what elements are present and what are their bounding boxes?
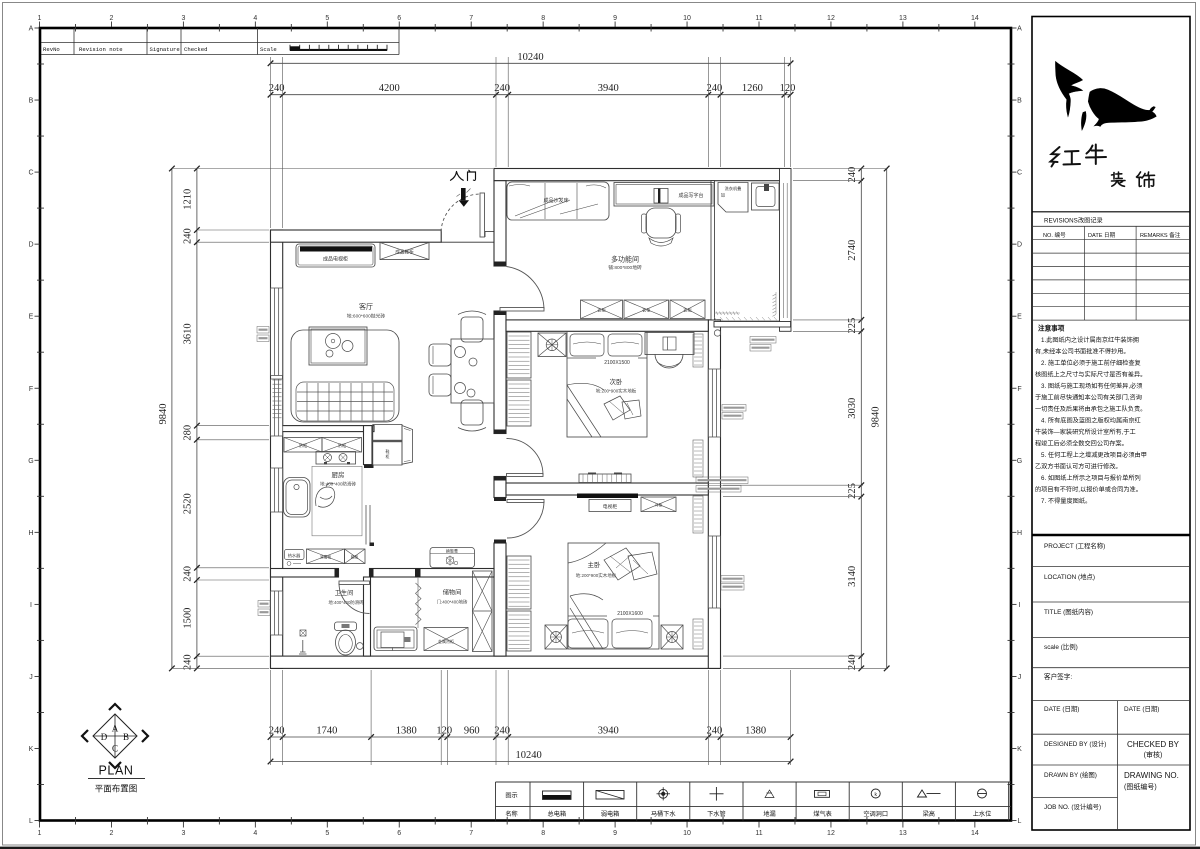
- svg-text:7: 7: [469, 830, 473, 837]
- svg-text:13: 13: [899, 15, 907, 22]
- svg-text:14: 14: [971, 830, 979, 837]
- svg-text:240: 240: [183, 228, 194, 244]
- svg-text:多功能间: 多功能间: [611, 255, 639, 264]
- svg-text:3: 3: [181, 15, 185, 22]
- svg-text:D: D: [101, 732, 108, 742]
- svg-text:PLAN: PLAN: [98, 764, 133, 778]
- svg-text:厨房: 厨房: [332, 470, 345, 479]
- svg-text:L: L: [1018, 818, 1022, 825]
- svg-text:洗衣机叠: 洗衣机叠: [725, 185, 742, 192]
- svg-text:2: 2: [109, 15, 113, 22]
- svg-text:K: K: [29, 746, 34, 753]
- svg-text:240: 240: [183, 654, 194, 670]
- svg-text:PROJECT (工程名称): PROJECT (工程名称): [1044, 541, 1105, 550]
- svg-text:地:200*900实木地板: 地:200*900实木地板: [576, 572, 617, 579]
- svg-text:DATE (日期): DATE (日期): [1124, 705, 1159, 713]
- svg-text:G: G: [28, 458, 33, 465]
- svg-text:C: C: [1017, 170, 1022, 177]
- svg-text:地:400*400防滑砖: 地:400*400防滑砖: [320, 481, 357, 488]
- svg-text:11: 11: [755, 830, 762, 837]
- svg-text:弱电箱: 弱电箱: [601, 810, 620, 818]
- svg-text:H: H: [1017, 530, 1022, 537]
- svg-text:总电箱: 总电箱: [548, 810, 567, 818]
- svg-text:卫生间: 卫生间: [335, 589, 354, 597]
- svg-text:RevNo: RevNo: [43, 46, 60, 53]
- svg-text:1210: 1210: [183, 189, 194, 210]
- svg-text:1500: 1500: [183, 608, 194, 629]
- svg-text:平面布置图: 平面布置图: [95, 784, 138, 794]
- svg-text:Signature: Signature: [150, 46, 180, 53]
- svg-text:换鞋凳: 换鞋凳: [446, 548, 458, 554]
- svg-text:有,未经本公司书面批准不得抄用。: 有,未经本公司书面批准不得抄用。: [1035, 348, 1130, 356]
- svg-text:NO. 编号: NO. 编号: [1043, 231, 1066, 239]
- svg-text:240: 240: [707, 83, 723, 94]
- svg-text:成品鞋柜: 成品鞋柜: [395, 249, 414, 256]
- svg-text:I: I: [1019, 602, 1021, 609]
- svg-text:240: 240: [847, 167, 858, 183]
- svg-text:金属吊柜: 金属吊柜: [438, 638, 454, 644]
- svg-text:120: 120: [780, 83, 796, 94]
- svg-text:成品电视柜: 成品电视柜: [323, 256, 348, 263]
- svg-text:地:600*600抛光砖: 地:600*600抛光砖: [347, 313, 386, 320]
- svg-text:斗柜: 斗柜: [655, 502, 663, 508]
- svg-text:Checked: Checked: [184, 46, 208, 53]
- svg-text:F: F: [1017, 386, 1021, 393]
- svg-text:吊柜: 吊柜: [299, 442, 307, 449]
- svg-text:牛装饰—家装研究所设计室所有,于工: 牛装饰—家装研究所设计室所有,于工: [1035, 428, 1136, 436]
- svg-text:吊柜: 吊柜: [338, 442, 346, 449]
- svg-text:衣柜: 衣柜: [597, 307, 605, 314]
- svg-text:TITLE (图纸内容): TITLE (图纸内容): [1044, 607, 1093, 616]
- svg-text:240: 240: [494, 726, 510, 737]
- svg-text:240: 240: [183, 566, 194, 582]
- svg-text:9840: 9840: [158, 404, 169, 425]
- svg-text:9: 9: [613, 15, 617, 22]
- svg-text:1.此图纸内之设计属南京红牛装饰拥: 1.此图纸内之设计属南京红牛装饰拥: [1041, 336, 1139, 344]
- svg-text:240: 240: [269, 83, 285, 94]
- svg-text:5. 任何工程上之增减更改项目必须由甲: 5. 任何工程上之增减更改项目必须由甲: [1041, 451, 1147, 459]
- svg-text:E: E: [29, 314, 34, 321]
- svg-text:3940: 3940: [598, 726, 619, 737]
- svg-text:960: 960: [464, 726, 480, 737]
- svg-text:改图记录: 改图记录: [1078, 217, 1103, 225]
- svg-text:D: D: [28, 242, 33, 249]
- svg-text:储物间: 储物间: [443, 589, 462, 597]
- svg-text:3: 3: [181, 830, 185, 837]
- svg-text:热水器: 热水器: [288, 552, 301, 559]
- svg-text:碗柜: 碗柜: [351, 555, 359, 560]
- svg-text:7: 7: [469, 15, 473, 22]
- svg-text:9840: 9840: [871, 407, 882, 428]
- svg-text:空调洞口: 空调洞口: [863, 810, 888, 818]
- svg-text:一切责任及后果将由承包之施工队负责。: 一切责任及后果将由承包之施工队负责。: [1035, 405, 1146, 413]
- svg-text:L: L: [29, 818, 33, 825]
- svg-text:地:400*400防滑砖: 地:400*400防滑砖: [328, 599, 364, 606]
- svg-text:1260: 1260: [742, 83, 763, 94]
- svg-text:乙双方书面认可方可进行修改。: 乙双方书面认可方可进行修改。: [1035, 463, 1122, 471]
- svg-text:8: 8: [541, 830, 545, 837]
- svg-text:电视柜: 电视柜: [603, 503, 618, 510]
- svg-text:煤气表: 煤气表: [813, 810, 832, 818]
- svg-text:3140: 3140: [847, 566, 858, 587]
- svg-text:12: 12: [827, 830, 835, 837]
- svg-text:3940: 3940: [598, 83, 619, 94]
- svg-text:5: 5: [325, 15, 329, 22]
- svg-text:Scale: Scale: [260, 46, 277, 53]
- svg-text:于施工前尽快通知本公司有关部门,咨询: 于施工前尽快通知本公司有关部门,咨询: [1035, 394, 1142, 402]
- svg-text:2: 2: [109, 830, 113, 837]
- svg-text:DESIGNED BY (设计): DESIGNED BY (设计): [1044, 739, 1106, 748]
- svg-text:D: D: [1017, 242, 1022, 249]
- svg-text:1380: 1380: [745, 726, 766, 737]
- svg-text:衣柜: 衣柜: [642, 307, 650, 314]
- svg-text:240: 240: [269, 726, 285, 737]
- svg-text:门:400*400地砖: 门:400*400地砖: [437, 599, 468, 606]
- svg-text:12: 12: [827, 15, 835, 22]
- svg-text:消毒柜: 消毒柜: [320, 555, 332, 560]
- svg-text:6. 如图纸上所示之项目与报价单所列: 6. 如图纸上所示之项目与报价单所列: [1041, 474, 1141, 482]
- svg-text:2. 施工单位必须于施工前仔细检查复: 2. 施工单位必须于施工前仔细检查复: [1041, 359, 1141, 367]
- svg-text:加: 加: [721, 192, 725, 199]
- svg-text:客厅: 客厅: [359, 302, 373, 311]
- svg-text:240: 240: [847, 654, 858, 670]
- svg-text:J: J: [29, 674, 33, 681]
- svg-text:C: C: [28, 170, 33, 177]
- svg-text:CHECKED BY: CHECKED BY: [1127, 740, 1180, 749]
- svg-text:4200: 4200: [379, 83, 400, 94]
- svg-text:(审核): (审核): [1144, 750, 1163, 759]
- svg-text:2100X1600: 2100X1600: [617, 611, 643, 617]
- svg-text:C: C: [112, 744, 118, 754]
- svg-text:铺:800*800地砖: 铺:800*800地砖: [608, 264, 642, 271]
- svg-text:的项目有不符时,以报价单或合同为准。: 的项目有不符时,以报价单或合同为准。: [1035, 486, 1142, 494]
- svg-text:衣柜: 衣柜: [683, 307, 691, 314]
- svg-text:14: 14: [971, 15, 979, 22]
- svg-text:3. 图纸与施工现场如有任何差异,必须: 3. 图纸与施工现场如有任何差异,必须: [1041, 382, 1142, 390]
- svg-text:注意事项: 注意事项: [1038, 324, 1065, 333]
- svg-text:E: E: [1017, 314, 1022, 321]
- svg-text:2740: 2740: [847, 240, 858, 261]
- svg-text:A: A: [29, 26, 34, 33]
- svg-text:F: F: [29, 386, 33, 393]
- svg-text:5: 5: [325, 830, 329, 837]
- svg-text:1: 1: [38, 830, 42, 837]
- svg-text:9: 9: [613, 830, 617, 837]
- svg-text:图示: 图示: [505, 793, 517, 800]
- svg-text:scale (比例): scale (比例): [1044, 642, 1078, 651]
- svg-text:8: 8: [541, 15, 545, 22]
- svg-text:I: I: [30, 602, 32, 609]
- svg-text:2520: 2520: [183, 493, 194, 514]
- svg-text:J: J: [1018, 674, 1022, 681]
- svg-text:REVISIONS: REVISIONS: [1044, 218, 1078, 225]
- svg-text:DRAWN BY (绘图): DRAWN BY (绘图): [1044, 770, 1097, 779]
- svg-text:1740: 1740: [316, 726, 337, 737]
- svg-text:A: A: [1017, 26, 1022, 33]
- svg-text:10: 10: [683, 15, 691, 22]
- svg-text:DRAWING NO.: DRAWING NO.: [1124, 771, 1179, 780]
- svg-text:A: A: [112, 724, 119, 734]
- svg-text:成品沙发床: 成品沙发床: [543, 197, 568, 204]
- svg-text:DATE 日期: DATE 日期: [1088, 232, 1116, 239]
- svg-text:柜: 柜: [386, 453, 390, 459]
- svg-text:H: H: [28, 530, 33, 537]
- svg-text:6: 6: [397, 830, 401, 837]
- svg-text:梁高: 梁高: [923, 810, 935, 818]
- svg-text:DATE (日期): DATE (日期): [1044, 705, 1079, 713]
- svg-text:11: 11: [755, 15, 762, 22]
- svg-text:B: B: [123, 732, 129, 742]
- svg-text:次卧: 次卧: [610, 377, 624, 386]
- svg-text:4. 所有底图及蓝图之版权均属南京红: 4. 所有底图及蓝图之版权均属南京红: [1041, 417, 1141, 425]
- svg-text:B: B: [1017, 98, 1022, 105]
- svg-text:280: 280: [183, 425, 194, 441]
- svg-text:13: 13: [899, 830, 907, 837]
- svg-text:B: B: [29, 98, 34, 105]
- svg-text:10: 10: [683, 830, 691, 837]
- svg-text:K: K: [1017, 746, 1022, 753]
- svg-text:240: 240: [707, 726, 723, 737]
- svg-text:4: 4: [253, 15, 257, 22]
- svg-text:上水位: 上水位: [973, 810, 992, 818]
- svg-text:成品写字台: 成品写字台: [678, 192, 703, 199]
- svg-text:1380: 1380: [396, 726, 417, 737]
- svg-text:地漏: 地漏: [763, 810, 775, 818]
- svg-text:名称: 名称: [505, 810, 517, 818]
- svg-text:G: G: [1017, 458, 1022, 465]
- svg-text:120: 120: [436, 726, 452, 737]
- svg-text:7. 不得量度图纸。: 7. 不得量度图纸。: [1041, 497, 1091, 505]
- svg-text:3030: 3030: [847, 398, 858, 419]
- svg-text:JOB NO. (设计编号): JOB NO. (设计编号): [1044, 802, 1101, 811]
- svg-text:下水管: 下水管: [707, 810, 726, 818]
- svg-text:马桶下水: 马桶下水: [651, 810, 677, 818]
- svg-text:10240: 10240: [515, 750, 541, 761]
- svg-text:(图纸编号): (图纸编号): [1124, 782, 1157, 791]
- svg-text:2100X1500: 2100X1500: [604, 360, 630, 366]
- svg-text:核图纸上之尺寸与实际尺寸是否有差异。: 核图纸上之尺寸与实际尺寸是否有差异。: [1035, 371, 1146, 379]
- svg-text:客户签字:: 客户签字:: [1044, 672, 1072, 681]
- svg-text:LOCATION (地点): LOCATION (地点): [1044, 572, 1095, 581]
- svg-text:240: 240: [494, 83, 510, 94]
- svg-text:1: 1: [38, 15, 42, 22]
- svg-text:10240: 10240: [517, 52, 543, 63]
- svg-text:程竣工后必须全数交回公司存案。: 程竣工后必须全数交回公司存案。: [1035, 440, 1128, 448]
- svg-text:6: 6: [397, 15, 401, 22]
- svg-text:REMARKS 备注: REMARKS 备注: [1140, 231, 1181, 239]
- svg-text:3610: 3610: [183, 323, 194, 344]
- svg-text:主卧: 主卧: [588, 560, 602, 569]
- svg-text:4: 4: [253, 830, 257, 837]
- svg-text:Revision note: Revision note: [79, 46, 123, 53]
